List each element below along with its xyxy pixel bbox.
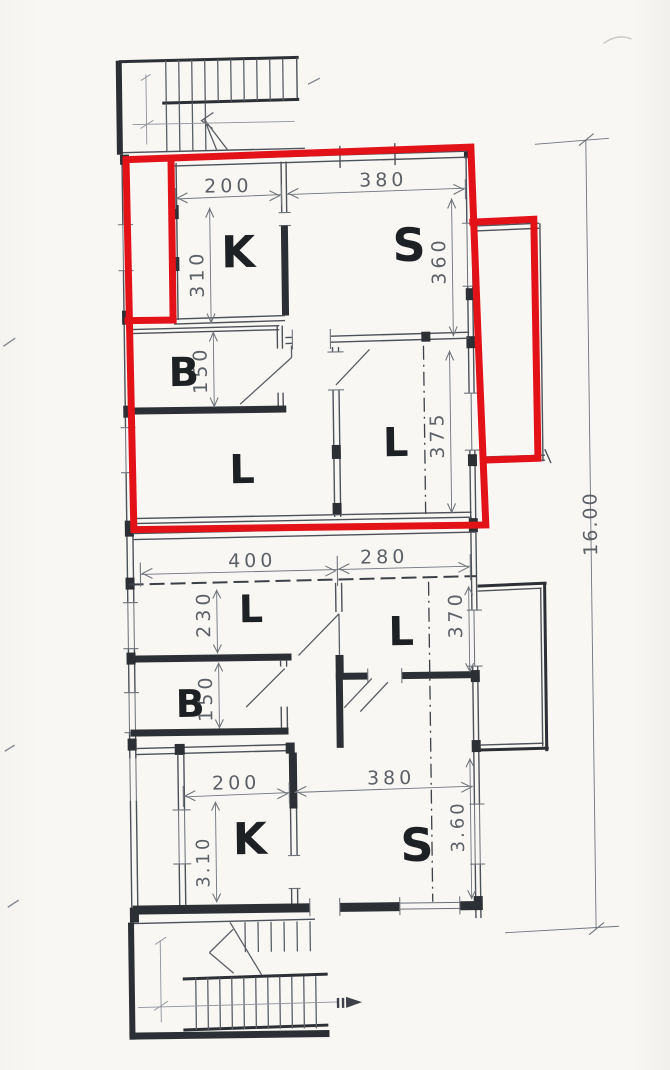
room-label-k-top: K [221, 227, 258, 278]
door-swing [246, 669, 285, 708]
dim-building-length: 16.00 [579, 491, 602, 556]
scanned-floorplan-page: 200 380 310 360 150 375 400 280 230 370 [0, 0, 670, 1070]
door-swing [240, 357, 293, 404]
room-label-k-bottom: K [233, 814, 270, 865]
floor-plan-svg: 200 380 310 360 150 375 400 280 230 370 [0, 0, 670, 1070]
room-label-l-right-top: L [383, 420, 409, 466]
centerline-top [423, 346, 425, 514]
scan-smudges [0, 37, 643, 908]
dim-l-left-depth-bottom: 230 [193, 589, 216, 638]
room-label-b-top: B [168, 350, 199, 396]
dim-k-width-bottom: 200 [212, 772, 261, 795]
dimensions-middle: 400 280 [140, 545, 470, 588]
dim-k-depth-bottom: 3.10 [193, 836, 215, 888]
dim-l-width-bottom: 400 [228, 550, 277, 573]
balcony-bottom-right [478, 583, 549, 752]
dim-k-depth-top: 310 [186, 249, 209, 298]
staircase-bottom [128, 919, 363, 1040]
dashed-party-wall [129, 576, 477, 585]
windows [118, 220, 486, 919]
room-label-s-top: S [392, 218, 426, 272]
door-swing [298, 614, 340, 656]
staircase-top [116, 57, 321, 155]
walls-top-apartment [123, 159, 472, 523]
highlight-entry-notch [126, 161, 173, 321]
room-label-l-right-bottom: L [388, 609, 414, 655]
dim-l-right-depth-top: 375 [426, 410, 449, 459]
dim-s-width-bottom: 380 [367, 767, 416, 790]
stair-direction-mark [308, 78, 320, 84]
highlighted-unit-outline [126, 146, 539, 529]
room-label-b-bottom: B [175, 682, 205, 726]
room-label-s-bottom: S [400, 818, 434, 872]
dim-s-width-top: 380 [359, 169, 408, 192]
dim-l-right-depth-bottom: 370 [445, 590, 468, 639]
dim-s-depth-top: 360 [428, 236, 451, 285]
dimension-overall: 16.00 [495, 133, 619, 935]
room-label-l-left-bottom: L [239, 587, 264, 631]
room-label-l-left-top: L [229, 447, 255, 493]
dim-l-right-width-bottom: 280 [360, 546, 409, 569]
dim-s-depth-bottom: 3.60 [447, 800, 469, 852]
dim-k-width-top: 200 [204, 175, 253, 198]
entry-arrow-icon [338, 997, 362, 1008]
